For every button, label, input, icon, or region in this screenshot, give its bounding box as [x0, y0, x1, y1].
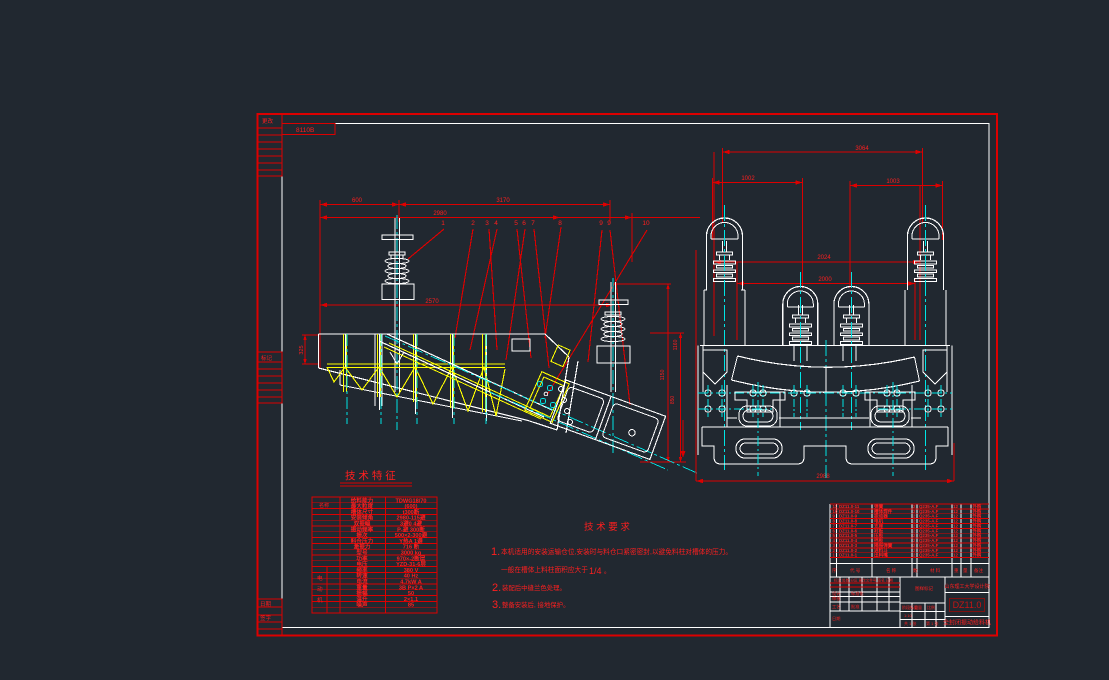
svg-text:1160: 1160	[673, 339, 679, 350]
svg-text:9: 9	[599, 220, 603, 227]
svg-text:标准化: 标准化	[851, 590, 864, 597]
svg-text:电压: 电压	[356, 560, 368, 568]
svg-text:噪声: 噪声	[356, 601, 368, 609]
svg-text:标记 处数 分区 更改文件号 签名 日期: 标记 处数 分区 更改文件号 签名 日期	[834, 578, 893, 583]
svg-text:4: 4	[494, 220, 498, 227]
svg-text:名称: 名称	[319, 502, 329, 509]
svg-text:重量: 重量	[356, 583, 368, 591]
svg-text:比例: 比例	[927, 604, 935, 610]
svg-text:3.: 3.	[492, 599, 501, 611]
svg-text:山东理工大学设计院: 山东理工大学设计院	[944, 583, 989, 590]
svg-text:整备安装后, 接地保护。: 整备安装后, 接地保护。	[502, 600, 569, 609]
svg-text:料仓压力: 料仓压力	[351, 537, 374, 545]
svg-text:序: 序	[832, 567, 837, 574]
svg-text:2024: 2024	[817, 255, 831, 261]
svg-text:出料嘴: 出料嘴	[874, 552, 888, 559]
svg-text:装配后中缝兰色处理。: 装配后中缝兰色处理。	[502, 583, 566, 592]
svg-text:第 1 张: 第 1 张	[926, 620, 938, 626]
svg-text:型号: 型号	[356, 549, 368, 557]
svg-text:2000: 2000	[818, 277, 832, 283]
svg-text:槽体尺寸: 槽体尺寸	[351, 508, 374, 516]
svg-text:P-避 300断: P-避 300断	[397, 525, 425, 533]
svg-text:外购: 外购	[973, 552, 982, 559]
svg-text:签字: 签字	[260, 614, 272, 622]
svg-text:日期: 日期	[260, 601, 272, 608]
svg-text:1003: 1003	[886, 179, 900, 185]
svg-text:功率: 功率	[356, 554, 368, 562]
svg-text:2570: 2570	[425, 299, 439, 305]
svg-text:全封闭振动给料机: 全封闭振动给料机	[943, 619, 991, 627]
svg-text:重: 重	[954, 567, 959, 573]
svg-text:8110B: 8110B	[296, 127, 314, 134]
svg-text:振次: 振次	[356, 531, 368, 539]
svg-text:量: 量	[963, 567, 968, 574]
svg-text:500×2-300避: 500×2-300避	[395, 531, 428, 539]
svg-text:1002: 1002	[741, 176, 755, 182]
svg-text:2.: 2.	[492, 582, 501, 594]
svg-text:Q235-A.F: Q235-A.F	[919, 553, 939, 558]
svg-text:9: 9	[607, 220, 611, 227]
svg-text:名 称: 名 称	[886, 567, 897, 574]
svg-text:材 料: 材 料	[930, 567, 941, 574]
svg-text:3避0 4避: 3避0 4避	[400, 520, 422, 528]
svg-text:DZ11.0-1: DZ11.0-1	[839, 553, 858, 558]
svg-text:最大粒度: 最大粒度	[351, 502, 374, 510]
svg-text:机: 机	[317, 596, 323, 604]
svg-text:安装倾角: 安装倾角	[351, 514, 374, 522]
svg-text:电流: 电流	[356, 578, 368, 586]
svg-text:325: 325	[299, 345, 305, 354]
svg-text:批准: 批准	[851, 603, 859, 610]
svg-text:850: 850	[670, 396, 676, 405]
svg-text:频率: 频率	[356, 566, 368, 574]
svg-text:代 号: 代 号	[850, 567, 861, 574]
svg-text:振动频率: 振动频率	[351, 525, 374, 533]
svg-text:给料能力: 给料能力	[351, 496, 374, 504]
svg-text:12: 12	[953, 553, 958, 558]
svg-text:970×-2断层: 970×-2断层	[397, 554, 426, 562]
svg-text:2988: 2988	[816, 474, 830, 480]
svg-text:2: 2	[471, 220, 475, 227]
svg-text:数: 数	[913, 567, 918, 574]
svg-text:6: 6	[522, 220, 526, 227]
svg-text:3: 3	[485, 220, 489, 227]
svg-text:2980-115避: 2980-115避	[397, 514, 426, 522]
svg-text:电: 电	[317, 574, 323, 582]
svg-text:1: 1	[441, 220, 445, 227]
svg-text:一般在槽体上料柱面积应大于: 一般在槽体上料柱面积应大于	[501, 565, 588, 574]
svg-text:DZ11.0: DZ11.0	[953, 600, 982, 610]
svg-text:标记: 标记	[261, 354, 273, 362]
svg-text:振幅: 振幅	[356, 589, 368, 597]
svg-text:审核: 审核	[832, 595, 841, 602]
svg-text:图样标记: 图样标记	[915, 585, 933, 592]
svg-text:8: 8	[558, 220, 562, 227]
svg-text:更改: 更改	[262, 117, 274, 125]
svg-text:技 术 要 求: 技 术 要 求	[584, 521, 630, 533]
svg-text:Y热A 1避: Y热A 1避	[399, 537, 423, 545]
svg-text:3170: 3170	[496, 198, 510, 204]
svg-text:技 术 特 征: 技 术 特 征	[345, 469, 396, 482]
svg-text:YZD-31-6层: YZD-31-6层	[396, 560, 426, 568]
svg-text:1.: 1.	[491, 546, 500, 558]
svg-text:激振力: 激振力	[354, 543, 371, 551]
svg-text:10: 10	[642, 220, 650, 227]
svg-text:双振幅: 双振幅	[354, 520, 371, 528]
svg-text:716 断: 716 断	[403, 543, 420, 551]
svg-text:工艺: 工艺	[832, 604, 840, 609]
svg-text:1/4: 1/4	[589, 566, 602, 576]
svg-text:1:10: 1:10	[904, 613, 913, 618]
svg-text:重量: 重量	[914, 604, 922, 610]
svg-text:本机适用的安装运输仓位,安装时与料仓口紧密密封,以避免料柱对: 本机适用的安装运输仓位,安装时与料仓口紧密密封,以避免料柱对槽体的压力。	[501, 547, 732, 556]
svg-text:3064: 3064	[855, 146, 869, 152]
svg-text:7: 7	[531, 220, 535, 227]
svg-text:1150: 1150	[660, 369, 666, 380]
svg-text:600: 600	[352, 198, 363, 204]
svg-text:共 1 张: 共 1 张	[904, 620, 916, 626]
svg-text:。: 。	[604, 568, 610, 575]
svg-text:2980: 2980	[433, 211, 447, 217]
svg-text:动: 动	[317, 586, 323, 593]
svg-text:t300断: t300断	[403, 508, 420, 516]
svg-text:85: 85	[408, 603, 414, 609]
svg-text:5: 5	[514, 220, 518, 227]
svg-text:转速: 转速	[356, 572, 368, 580]
svg-text:温升: 温升	[356, 595, 368, 603]
svg-text:备注: 备注	[974, 567, 983, 574]
